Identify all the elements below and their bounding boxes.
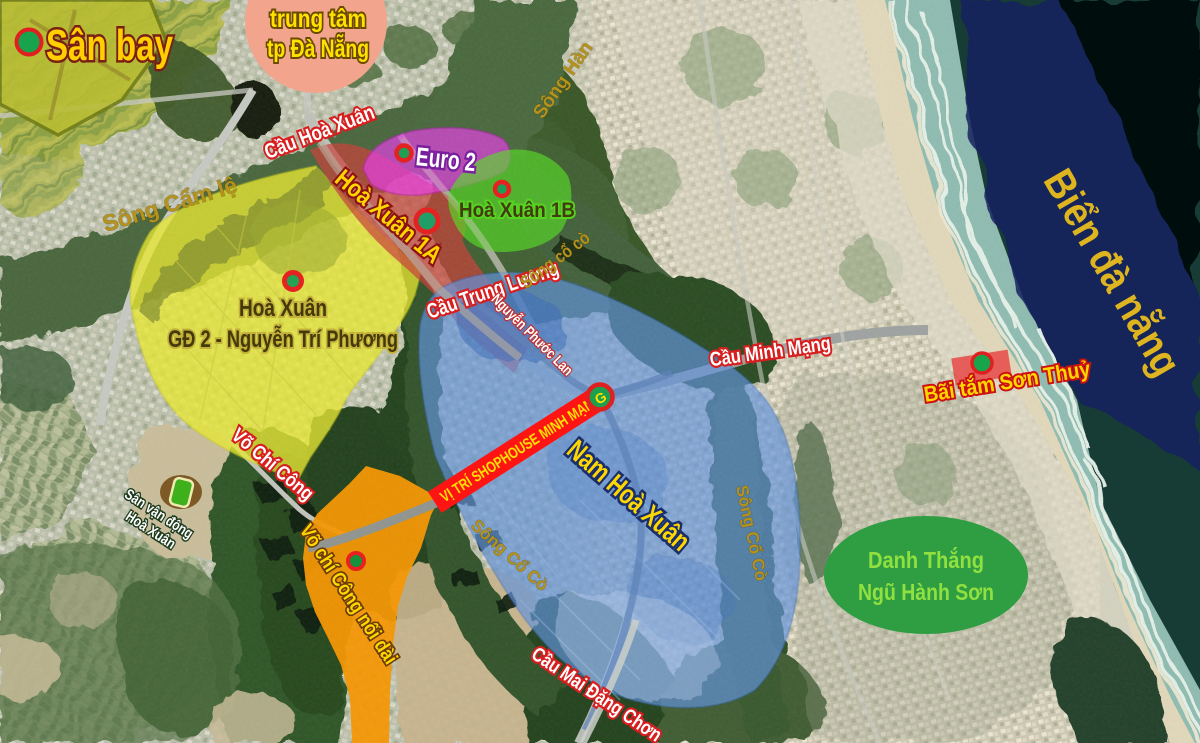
svg-text:Euro 2: Euro 2: [415, 141, 478, 177]
svg-text:GĐ 2 - Nguyễn Trí Phương: GĐ 2 - Nguyễn Trí Phương: [168, 325, 398, 353]
svg-text:tp Đà Nẵng: tp Đà Nẵng: [267, 33, 369, 63]
svg-text:trung tâm: trung tâm: [270, 5, 366, 33]
svg-text:Hoà Xuân 1B: Hoà Xuân 1B: [459, 198, 575, 222]
svg-text:Danh Thắng: Danh Thắng: [868, 546, 984, 573]
svg-text:Ngũ Hành Sơn: Ngũ Hành Sơn: [858, 579, 994, 605]
svg-text:Hoà Xuân: Hoà Xuân: [239, 295, 327, 322]
svg-text:Sân bay: Sân bay: [46, 21, 173, 70]
